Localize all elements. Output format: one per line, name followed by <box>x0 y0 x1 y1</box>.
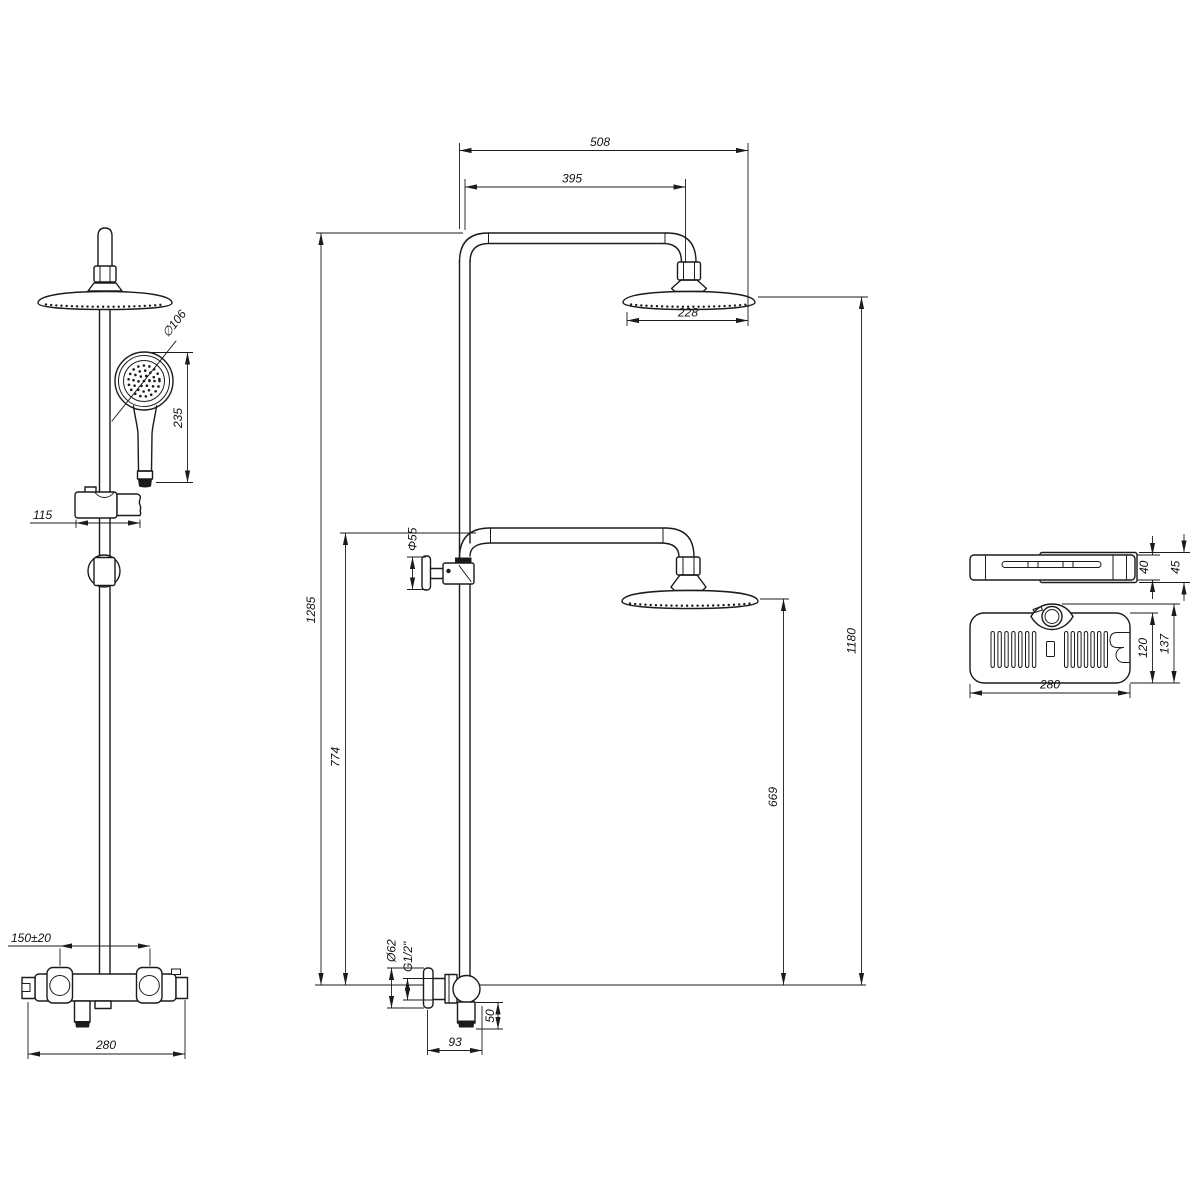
elbow-body <box>453 976 480 1003</box>
overhead-shower-disc <box>38 292 172 310</box>
swivel-nut <box>94 266 116 282</box>
handle-aerator <box>138 479 152 488</box>
diameter-leader-line <box>112 341 176 421</box>
head-cone <box>88 283 122 291</box>
dim-thread-size: G1/2" <box>401 941 415 972</box>
dim-tray-depth: 120 <box>1136 638 1150 658</box>
elbow-spout <box>458 1002 476 1023</box>
knob-sleeve <box>94 558 115 586</box>
dim-spout-drop: 50 <box>483 1009 497 1023</box>
lower-shower-arm <box>460 528 759 609</box>
dim-tray-width: 280 <box>1039 678 1060 692</box>
bracket-clamp <box>443 563 474 584</box>
handheld-handle <box>134 406 157 471</box>
shelf-views: 40 45 <box>970 534 1190 698</box>
swivel-nut <box>678 262 701 280</box>
side-view: Φ55 Ø62 G1/2" 50 93 <box>304 135 868 1055</box>
technical-drawing-canvas: ∅106 235 115 <box>0 0 1200 1200</box>
dim-inlet-spacing: 150±20 <box>11 931 51 945</box>
dim-arm-reach: 395 <box>562 172 582 186</box>
wall-supply-elbow <box>424 968 481 1028</box>
shelf-top-view <box>970 604 1130 683</box>
front-view: ∅106 235 115 <box>8 228 193 1059</box>
dim-shelf-front-height: 40 <box>1137 560 1151 574</box>
dim-handheld-length: 235 <box>171 408 185 429</box>
bracket-wall-plate <box>422 556 431 590</box>
handheld-shower <box>112 341 176 488</box>
inlet-connector-left <box>47 968 73 1004</box>
head-cone <box>671 575 706 591</box>
mixer-right-cap <box>176 978 188 999</box>
dim-escutcheon-diameter: Ø62 <box>385 939 399 963</box>
upper-shower-arm <box>460 233 756 310</box>
dim-head-diameter: 228 <box>677 306 698 320</box>
dim-overall-depth: 137 <box>1158 633 1172 654</box>
dim-riser-height: 1285 <box>304 596 318 623</box>
spout-aerator <box>458 1021 475 1028</box>
dim-upper-head-height: 1180 <box>845 628 859 654</box>
slider-bracket <box>75 487 141 518</box>
head-cone <box>672 280 707 292</box>
top-pipe-stub <box>98 228 112 266</box>
dim-shelf-back-height: 45 <box>1169 560 1183 574</box>
dim-slider-width: 115 <box>33 508 52 522</box>
dim-overall-reach: 508 <box>590 135 610 149</box>
wall-bracket <box>422 556 474 590</box>
dim-lower-outlet-height: 774 <box>329 747 343 767</box>
shelf-front-view <box>970 553 1137 583</box>
dim-spout-reach: 93 <box>448 1035 462 1049</box>
lower-shower-disc <box>622 591 758 609</box>
drawing-svg: ∅106 235 115 <box>0 0 1200 1200</box>
mixer-outlet <box>75 1001 91 1022</box>
dim-mixer-width: 280 <box>95 1038 116 1052</box>
wall-escutcheon <box>424 968 434 1008</box>
handle-end <box>138 471 153 479</box>
dim-lower-head-height: 669 <box>766 787 780 807</box>
dim-bracket-diameter: Φ55 <box>406 527 420 551</box>
dim-handheld-diameter: ∅106 <box>159 307 189 340</box>
inlet-connector-right <box>137 968 163 1004</box>
mixer-valve <box>22 968 188 1028</box>
swivel-nut <box>677 557 701 575</box>
